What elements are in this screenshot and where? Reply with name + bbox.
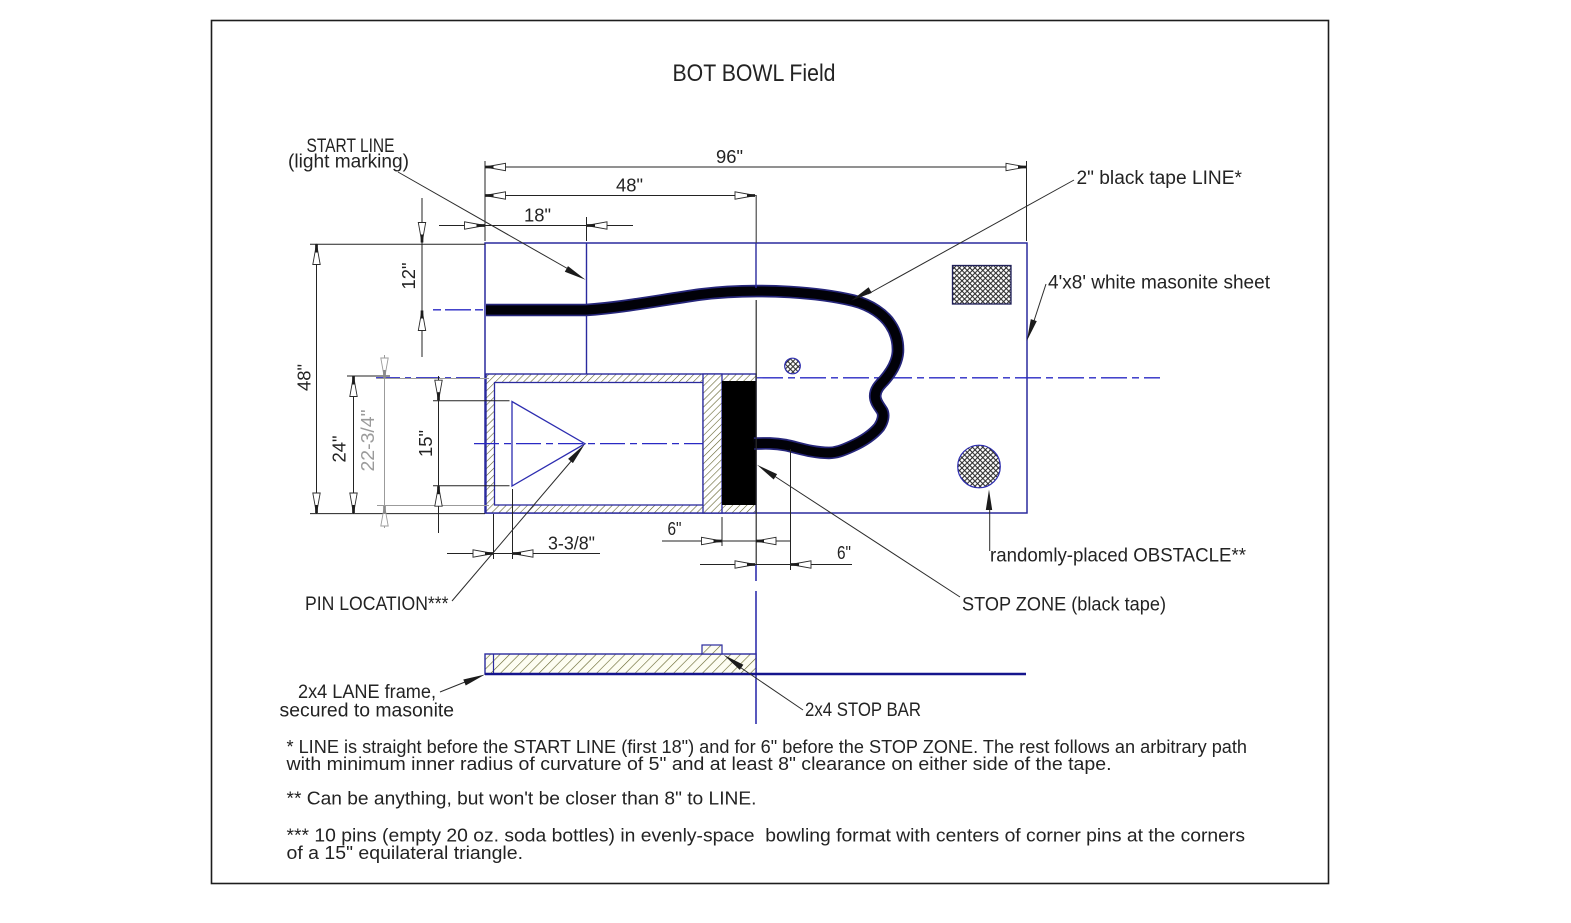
svg-text:(light marking): (light marking) <box>288 152 409 173</box>
svg-text:48": 48" <box>295 364 315 391</box>
svg-text:** Can be anything, but won't: ** Can be anything, but won't be closer … <box>287 788 757 809</box>
svg-text:2x4 STOP BAR: 2x4 STOP BAR <box>805 700 921 721</box>
svg-text:48": 48" <box>616 176 643 196</box>
svg-text:3-3/8": 3-3/8" <box>548 534 595 554</box>
svg-text:randomly-placed OBSTACLE**: randomly-placed OBSTACLE** <box>990 546 1247 567</box>
svg-text:24": 24" <box>330 436 350 463</box>
svg-text:BOT BOWL Field: BOT BOWL Field <box>673 60 836 87</box>
svg-text:6": 6" <box>837 543 851 563</box>
svg-text:6": 6" <box>668 519 682 539</box>
svg-text:secured to masonite: secured to masonite <box>280 701 455 722</box>
svg-text:96": 96" <box>716 147 743 167</box>
svg-text:with minimum inner radius of c: with minimum inner radius of curvature o… <box>285 753 1111 774</box>
svg-text:PIN LOCATION***: PIN LOCATION*** <box>305 594 449 615</box>
svg-text:of a 15" equilateral triangle.: of a 15" equilateral triangle. <box>287 842 524 863</box>
svg-text:18": 18" <box>524 206 551 226</box>
svg-text:15": 15" <box>416 430 436 457</box>
svg-text:2" black tape LINE*: 2" black tape LINE* <box>1077 168 1243 189</box>
svg-text:STOP ZONE (black tape): STOP ZONE (black tape) <box>962 595 1166 616</box>
svg-text:22-3/4": 22-3/4" <box>358 410 378 472</box>
svg-text:4'x8' white masonite sheet: 4'x8' white masonite sheet <box>1048 273 1271 294</box>
svg-text:12": 12" <box>399 263 419 290</box>
